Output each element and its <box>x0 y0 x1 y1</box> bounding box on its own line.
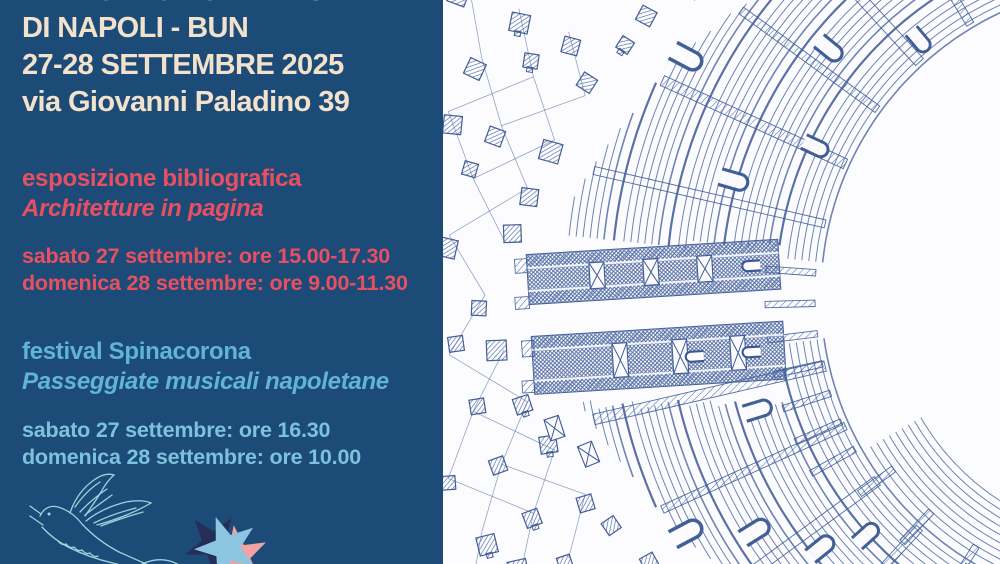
event-dates: 27-28 SETTEMBRE 2025 <box>22 47 415 84</box>
venue-line2: DI NAPOLI - BUN <box>22 10 415 47</box>
venue-address: via Giovanni Paladino 39 <box>22 84 415 121</box>
swallow-bird-icon <box>30 474 186 564</box>
event-poster: BIBLIOTECA UNIVERSITARIA DI NAPOLI - BUN… <box>0 0 1000 564</box>
exhibition-schedule: sabato 27 settembre: ore 15.00-17.30 dom… <box>22 243 408 297</box>
festival-schedule-line: sabato 27 settembre: ore 16.30 <box>22 417 361 444</box>
exhibition-block: esposizione bibliografica Architetture i… <box>22 164 301 224</box>
exhibition-label: esposizione bibliografica <box>22 164 301 194</box>
festival-schedule-line: domenica 28 settembre: ore 10.00 <box>22 444 361 471</box>
festival-schedule: sabato 27 settembre: ore 16.30 domenica … <box>22 417 361 471</box>
exhibition-schedule-line: domenica 28 settembre: ore 9.00-11.30 <box>22 270 408 297</box>
venue-block: BIBLIOTECA UNIVERSITARIA DI NAPOLI - BUN… <box>22 0 415 121</box>
illustration-panel <box>443 0 1000 564</box>
exhibition-schedule-line: sabato 27 settembre: ore 15.00-17.30 <box>22 243 408 270</box>
festival-label: festival Spinacorona <box>22 337 389 367</box>
star-icon <box>185 517 266 564</box>
theatre-plan-illustration <box>443 0 1000 564</box>
exhibition-title: Architetture in pagina <box>22 194 301 224</box>
festival-title: Passeggiate musicali napoletane <box>22 367 389 397</box>
venue-line1: BIBLIOTECA UNIVERSITARIA <box>22 0 415 10</box>
info-panel: BIBLIOTECA UNIVERSITARIA DI NAPOLI - BUN… <box>0 0 443 564</box>
festival-block: festival Spinacorona Passeggiate musical… <box>22 337 389 397</box>
